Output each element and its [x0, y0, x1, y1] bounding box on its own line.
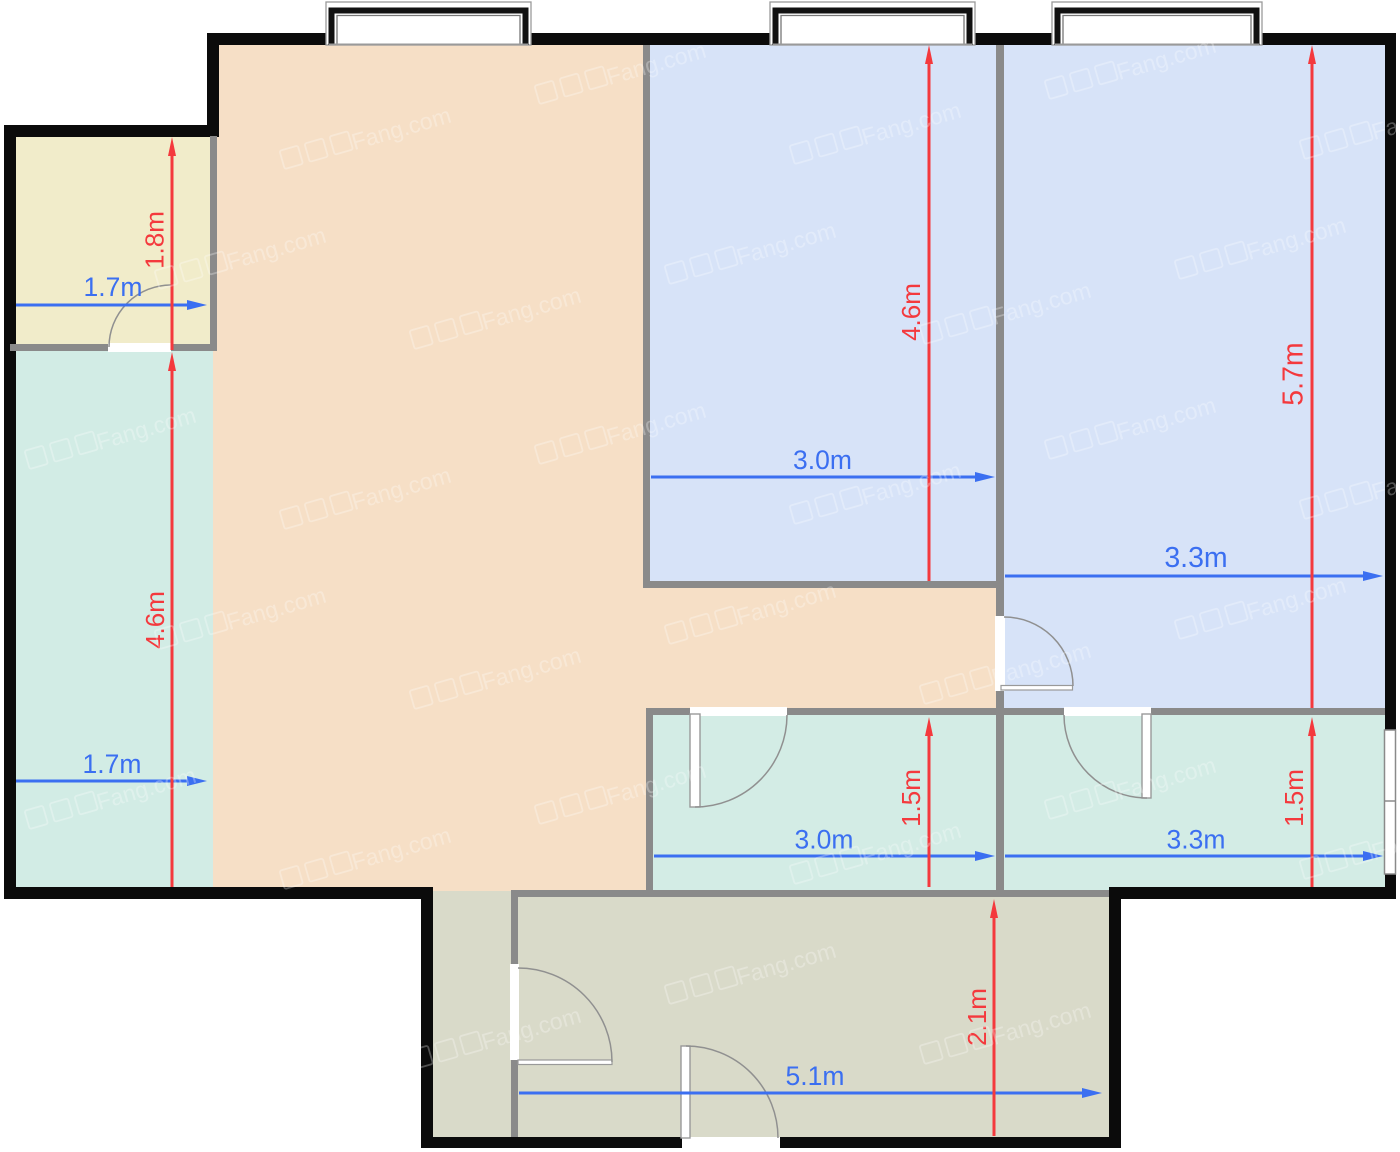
svg-text:2.1m: 2.1m [962, 988, 992, 1046]
svg-text:3.3m: 3.3m [1164, 542, 1227, 574]
svg-text:3.3m: 3.3m [1167, 825, 1226, 855]
svg-text:5.7m: 5.7m [1278, 342, 1310, 405]
svg-text:1.5m: 1.5m [1279, 769, 1309, 827]
svg-text:1.7m: 1.7m [84, 272, 143, 302]
svg-text:1.7m: 1.7m [83, 749, 142, 779]
svg-text:1.5m: 1.5m [896, 769, 926, 827]
svg-text:3.0m: 3.0m [793, 445, 852, 475]
svg-text:4.6m: 4.6m [140, 591, 170, 649]
svg-text:5.1m: 5.1m [786, 1061, 845, 1091]
svg-text:1.8m: 1.8m [140, 211, 170, 269]
